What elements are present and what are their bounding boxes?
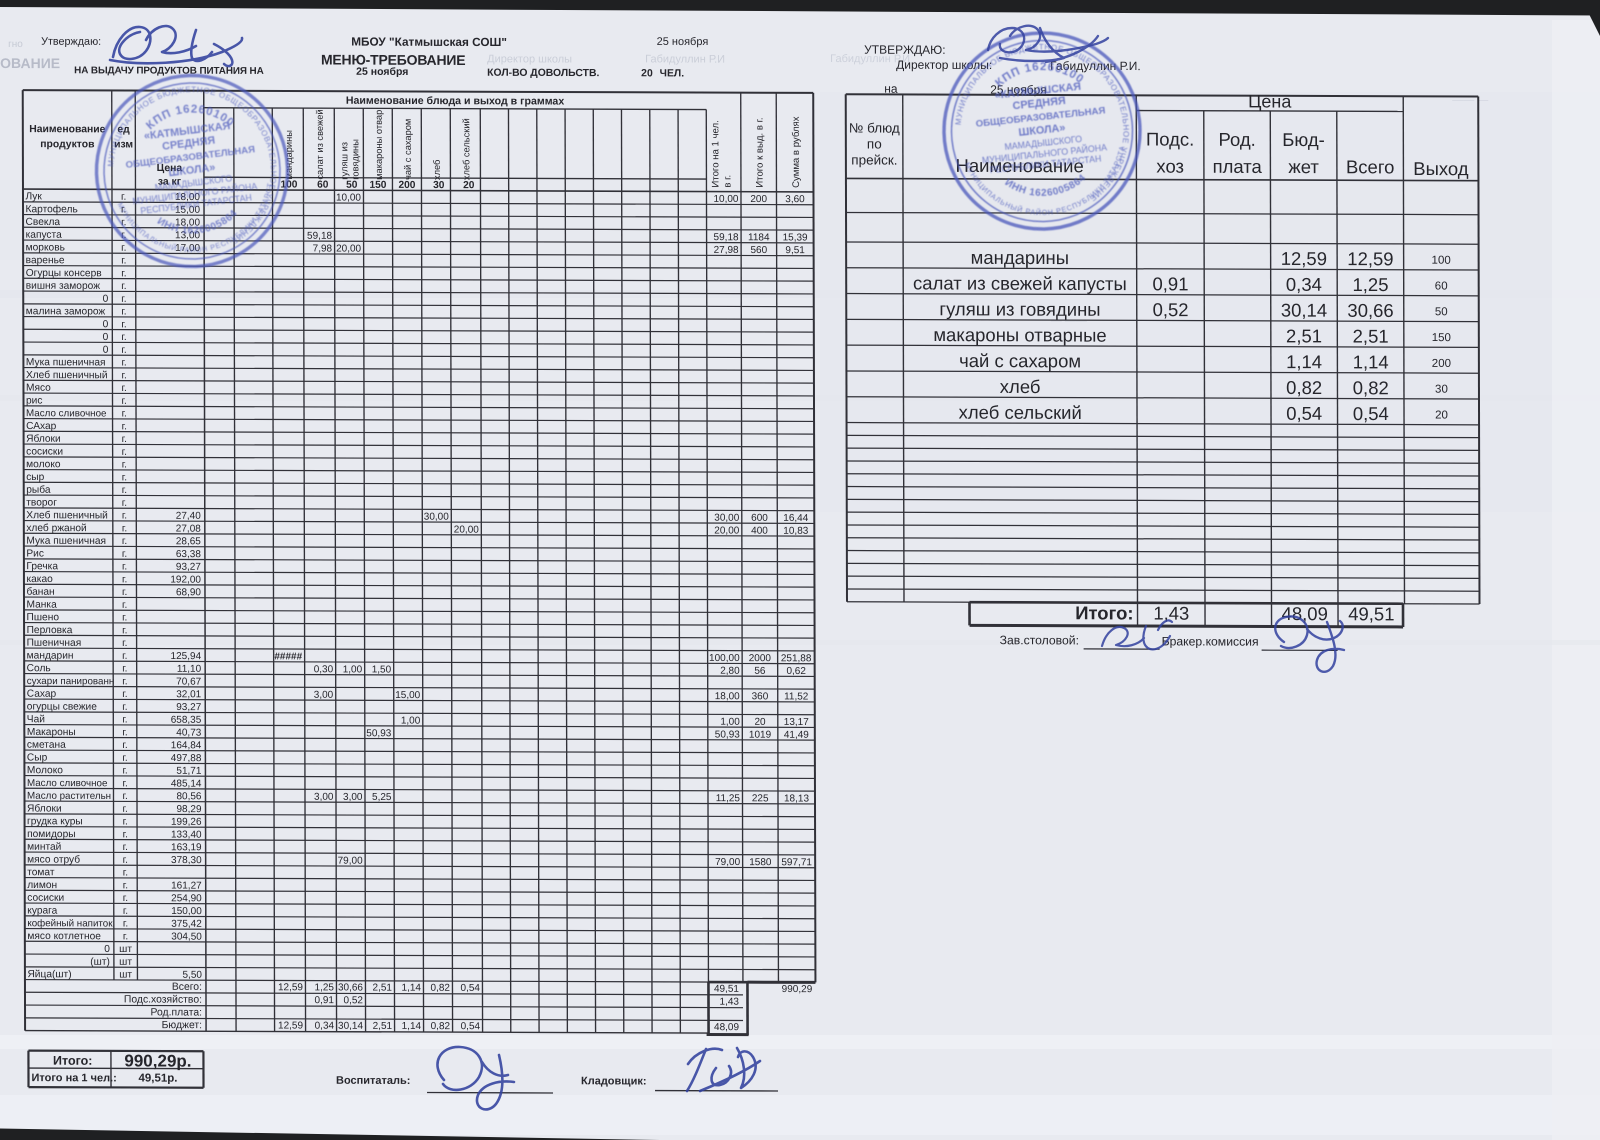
- svg-text:г.: г.: [122, 689, 127, 700]
- svg-text:12,59: 12,59: [278, 1020, 303, 1031]
- svg-text:продуктов: продуктов: [40, 139, 94, 150]
- svg-text:Наименование блюда и выход в г: Наименование блюда и выход в граммах: [346, 95, 564, 108]
- svg-text:Масло растительн: Масло растительн: [27, 791, 111, 802]
- svg-text:г.: г.: [122, 562, 127, 573]
- svg-text:3,00: 3,00: [343, 792, 363, 803]
- svg-text:Итого на 1 чел.:: Итого на 1 чел.:: [31, 1072, 116, 1084]
- svg-text:г.: г.: [122, 409, 127, 420]
- svg-text:0,54: 0,54: [460, 983, 480, 994]
- svg-text:г.: г.: [121, 281, 126, 292]
- svg-text:1184: 1184: [748, 232, 770, 243]
- svg-text:32,01: 32,01: [176, 689, 201, 700]
- svg-text:0,34: 0,34: [1286, 274, 1322, 295]
- svg-text:кофейный напиток: кофейный напиток: [27, 918, 113, 929]
- svg-text:г.: г.: [121, 268, 126, 279]
- svg-text:Итого на 1 чел.: Итого на 1 чел.: [710, 120, 721, 187]
- svg-text:Сыр: Сыр: [27, 752, 48, 763]
- svg-text:1,00: 1,00: [401, 716, 421, 727]
- svg-text:0,54: 0,54: [1353, 403, 1389, 424]
- svg-text:г.: г.: [122, 447, 127, 458]
- svg-text:20: 20: [641, 68, 653, 79]
- svg-text:макароны отварные: макароны отварные: [933, 324, 1106, 346]
- svg-text:чай с сахаром: чай с сахаром: [959, 350, 1081, 371]
- svg-text:18,00: 18,00: [715, 691, 740, 702]
- svg-text:Директор школы:: Директор школы:: [896, 58, 992, 72]
- svg-text:1580: 1580: [749, 857, 772, 868]
- svg-text:2000: 2000: [749, 653, 772, 664]
- svg-text:56: 56: [754, 666, 766, 677]
- svg-text:Перловка: Перловка: [27, 625, 73, 636]
- svg-text:г.: г.: [122, 434, 127, 445]
- svg-text:12,59: 12,59: [278, 982, 303, 993]
- svg-text:мясо отруб: мясо отруб: [27, 853, 80, 865]
- svg-text:12,59: 12,59: [1281, 248, 1327, 269]
- svg-text:г.: г.: [123, 880, 128, 891]
- svg-text:г.: г.: [122, 740, 127, 751]
- svg-text:68,90: 68,90: [176, 587, 201, 598]
- svg-text:30,66: 30,66: [338, 982, 363, 993]
- svg-text:11,25: 11,25: [716, 793, 741, 804]
- svg-text:Яблоки: Яблоки: [27, 802, 62, 814]
- svg-text:18,13: 18,13: [784, 793, 809, 804]
- svg-text:хлеб сельский: хлеб сельский: [461, 118, 471, 180]
- svg-text:1,25: 1,25: [314, 982, 334, 993]
- svg-text:молоко: молоко: [26, 459, 61, 470]
- svg-text:Зав.столовой:: Зав.столовой:: [1000, 633, 1079, 647]
- svg-text:г.: г.: [122, 676, 127, 687]
- svg-text:1,00: 1,00: [720, 717, 740, 728]
- svg-text:№ блюд: № блюд: [849, 120, 900, 135]
- svg-text:225: 225: [752, 793, 769, 804]
- svg-text:Итого к выд. в г.: Итого к выд. в г.: [754, 117, 765, 187]
- svg-text:192,00: 192,00: [170, 575, 201, 586]
- svg-text:100,00: 100,00: [709, 653, 740, 664]
- svg-text:41,49: 41,49: [784, 730, 809, 741]
- svg-text:10,00: 10,00: [336, 193, 361, 204]
- svg-text:САхар: САхар: [26, 421, 57, 432]
- svg-text:16,44: 16,44: [783, 513, 808, 524]
- svg-text:Род.плата:: Род.плата:: [150, 1007, 202, 1018]
- svg-text:49,51: 49,51: [714, 984, 739, 995]
- svg-text:хлеб ржаной: хлеб ржаной: [26, 522, 86, 534]
- svg-text:0,91: 0,91: [315, 995, 335, 1006]
- svg-text:г.: г.: [123, 829, 128, 840]
- svg-text:мандарин: мандарин: [27, 650, 74, 661]
- svg-text:г.: г.: [122, 460, 127, 471]
- svg-text:0,82: 0,82: [1286, 377, 1322, 398]
- svg-text:Наименование: Наименование: [29, 124, 105, 135]
- svg-text:Подс.: Подс.: [1146, 129, 1194, 150]
- svg-text:79,00: 79,00: [338, 856, 363, 867]
- svg-text:378,30: 378,30: [171, 855, 202, 866]
- svg-text:в г.: в г.: [722, 175, 733, 188]
- svg-text:сосиски: сосиски: [27, 893, 64, 904]
- svg-text:Соль: Соль: [27, 663, 51, 674]
- svg-text:27,40: 27,40: [176, 511, 201, 522]
- svg-text:11,52: 11,52: [784, 691, 809, 702]
- svg-text:Итого:: Итого:: [53, 1054, 92, 1068]
- svg-text:0,52: 0,52: [1153, 299, 1189, 320]
- svg-text:400: 400: [751, 526, 768, 537]
- svg-text:Воспитаталь:: Воспитаталь:: [336, 1075, 410, 1087]
- svg-text:прейск.: прейск.: [851, 152, 897, 167]
- svg-text:шт: шт: [119, 944, 132, 955]
- svg-text:г.: г.: [121, 345, 126, 356]
- svg-text:Масло сливочное: Масло сливочное: [26, 408, 107, 419]
- svg-text:г.: г.: [122, 549, 127, 560]
- svg-text:254,90: 254,90: [171, 893, 202, 904]
- svg-text:салат из свежей капусты: салат из свежей капусты: [913, 272, 1127, 294]
- svg-text:малина заморож: малина заморож: [26, 306, 106, 317]
- svg-text:плата: плата: [1213, 156, 1263, 177]
- svg-text:Лук: Лук: [25, 191, 42, 202]
- svg-text:мясо котлетное: мясо котлетное: [27, 931, 101, 942]
- svg-text:г.: г.: [122, 715, 127, 726]
- svg-text:варенье: варенье: [26, 255, 65, 266]
- svg-text:сыр: сыр: [26, 472, 44, 483]
- svg-text:г.: г.: [123, 893, 128, 904]
- svg-text:г.: г.: [122, 727, 127, 738]
- svg-text:50: 50: [1435, 306, 1448, 318]
- svg-text:30,00: 30,00: [714, 513, 739, 524]
- svg-text:УТВЕРЖДАЮ:: УТВЕРЖДАЮ:: [864, 43, 946, 57]
- svg-text:30,66: 30,66: [1347, 300, 1393, 321]
- svg-text:63,38: 63,38: [176, 549, 201, 560]
- svg-text:г.: г.: [121, 358, 126, 369]
- svg-text:150: 150: [1432, 332, 1451, 344]
- svg-text:чай с сахаром: чай с сахаром: [403, 119, 413, 180]
- svg-text:2,51: 2,51: [1353, 326, 1389, 347]
- svg-text:г.: г.: [122, 421, 127, 432]
- svg-text:вишня заморож: вишня заморож: [26, 281, 100, 292]
- svg-text:г.: г.: [123, 906, 128, 917]
- svg-text:251,88: 251,88: [781, 653, 812, 664]
- svg-text:30,14: 30,14: [338, 1021, 363, 1032]
- svg-text:497,88: 497,88: [171, 753, 202, 764]
- svg-text:600: 600: [751, 513, 768, 524]
- svg-text:100: 100: [1432, 255, 1451, 267]
- svg-text:0,54: 0,54: [461, 1021, 481, 1032]
- svg-text:рыба: рыба: [26, 484, 51, 496]
- svg-text:г.: г.: [123, 842, 128, 853]
- svg-text:Род.: Род.: [1218, 129, 1255, 150]
- svg-text:304,50: 304,50: [171, 932, 202, 943]
- svg-text:125,94: 125,94: [171, 651, 202, 662]
- svg-text:сметана: сметана: [27, 740, 66, 751]
- svg-text:0,82: 0,82: [431, 1021, 451, 1032]
- svg-text:30: 30: [433, 180, 445, 191]
- svg-text:1,25: 1,25: [1352, 274, 1388, 295]
- svg-text:Яблоки: Яблоки: [26, 433, 61, 445]
- svg-text:375,42: 375,42: [171, 919, 202, 930]
- svg-text:200: 200: [1432, 358, 1451, 370]
- svg-text:70,67: 70,67: [176, 677, 201, 688]
- svg-text:597,71: 597,71: [781, 857, 812, 868]
- svg-text:говядины: говядины: [350, 139, 360, 180]
- svg-text:0,82: 0,82: [1353, 377, 1389, 398]
- svg-text:2,80: 2,80: [720, 666, 740, 677]
- svg-text:шт: шт: [119, 957, 132, 968]
- svg-text:г.: г.: [123, 817, 128, 828]
- svg-text:3,00: 3,00: [314, 792, 334, 803]
- svg-text:Утверждаю:: Утверждаю:: [41, 36, 101, 48]
- svg-text:50,93: 50,93: [715, 729, 740, 740]
- svg-text:3,00: 3,00: [314, 690, 334, 701]
- svg-text:мандарины: мандарины: [971, 247, 1070, 268]
- svg-text:0,62: 0,62: [786, 666, 806, 677]
- svg-text:г.: г.: [122, 753, 127, 764]
- svg-text:рис: рис: [26, 395, 42, 406]
- svg-text:Мясо: Мясо: [26, 383, 51, 394]
- svg-text:сухари панированн: сухари панированн: [27, 676, 115, 687]
- svg-text:г.: г.: [123, 804, 128, 815]
- svg-text:Бюд-: Бюд-: [1282, 129, 1325, 150]
- svg-text:хлеб: хлеб: [1000, 376, 1041, 397]
- svg-text:20: 20: [463, 180, 475, 191]
- svg-text:Рис: Рис: [26, 548, 44, 559]
- svg-text:г.: г.: [121, 319, 126, 330]
- svg-text:Гречка: Гречка: [26, 561, 58, 572]
- svg-text:г.: г.: [121, 294, 126, 305]
- svg-text:3,60: 3,60: [785, 194, 805, 205]
- svg-text:13,17: 13,17: [784, 717, 809, 728]
- svg-text:(шт): (шт): [90, 957, 110, 968]
- svg-text:творог: творог: [26, 497, 57, 508]
- svg-text:163,19: 163,19: [171, 842, 202, 853]
- svg-text:лимон: лимон: [27, 880, 57, 891]
- svg-text:50: 50: [346, 180, 358, 191]
- svg-text:г.: г.: [122, 523, 127, 534]
- svg-text:г.: г.: [122, 587, 127, 598]
- svg-text:658,35: 658,35: [171, 715, 202, 726]
- svg-text:60: 60: [1435, 280, 1448, 292]
- svg-text:жет: жет: [1288, 156, 1319, 177]
- svg-text:0: 0: [103, 294, 109, 305]
- svg-text:г.: г.: [121, 332, 126, 343]
- svg-text:485,14: 485,14: [171, 779, 202, 790]
- svg-text:30,14: 30,14: [1281, 300, 1327, 321]
- svg-text:98,29: 98,29: [176, 804, 201, 815]
- svg-text:Пшеничная: Пшеничная: [27, 638, 82, 649]
- svg-text:огурцы свежие: огурцы свежие: [27, 701, 97, 712]
- svg-text:Манка: Манка: [26, 599, 57, 610]
- svg-text:0: 0: [104, 944, 110, 955]
- svg-text:20: 20: [754, 717, 766, 728]
- svg-text:10,83: 10,83: [783, 526, 808, 537]
- svg-text:Всего:: Всего:: [172, 982, 202, 993]
- svg-text:г.: г.: [122, 574, 127, 585]
- svg-text:49,51: 49,51: [1348, 603, 1394, 624]
- svg-text:г.: г.: [122, 664, 127, 675]
- svg-text:КОЛ-ВО ДОВОЛЬСТВ.: КОЛ-ВО ДОВОЛЬСТВ.: [487, 68, 599, 79]
- svg-text:Итого:: Итого:: [1075, 602, 1133, 623]
- svg-text:банан: банан: [26, 586, 54, 598]
- svg-text:г.: г.: [122, 498, 127, 509]
- svg-text:60: 60: [317, 180, 329, 191]
- svg-text:360: 360: [752, 691, 769, 702]
- svg-text:100: 100: [280, 180, 297, 191]
- svg-text:560: 560: [750, 245, 767, 256]
- svg-text:г.: г.: [123, 855, 128, 866]
- svg-text:Картофель: Картофель: [26, 203, 78, 215]
- svg-text:минтай: минтай: [27, 842, 61, 853]
- svg-text:хлеб сельский: хлеб сельский: [959, 402, 1082, 423]
- svg-text:гно: гно: [8, 39, 23, 50]
- svg-text:25 ноября: 25 ноября: [356, 66, 408, 78]
- svg-text:20,00: 20,00: [454, 525, 479, 536]
- svg-text:г.: г.: [121, 256, 126, 267]
- svg-text:Яйца(шт): Яйца(шт): [27, 969, 71, 980]
- svg-text:59,18: 59,18: [307, 231, 332, 242]
- svg-text:г.: г.: [122, 472, 127, 483]
- svg-text:грудка куры: грудка куры: [27, 816, 83, 827]
- svg-text:0: 0: [103, 332, 109, 343]
- svg-text:1,14: 1,14: [402, 1021, 422, 1032]
- svg-text:Хлеб пшеничный: Хлеб пшеничный: [26, 509, 108, 521]
- svg-text:133,40: 133,40: [171, 830, 202, 841]
- svg-text:1,00: 1,00: [343, 664, 363, 675]
- svg-text:Макароны: Макароны: [27, 727, 76, 738]
- svg-text:30,00: 30,00: [424, 512, 449, 523]
- svg-text:1019: 1019: [749, 730, 772, 741]
- svg-text:11,10: 11,10: [177, 664, 202, 675]
- svg-text:1,14: 1,14: [1286, 351, 1322, 372]
- svg-text:0,52: 0,52: [344, 995, 364, 1006]
- svg-text:г.: г.: [121, 307, 126, 318]
- svg-text:990,29р.: 990,29р.: [124, 1051, 191, 1070]
- svg-text:шт: шт: [119, 970, 132, 981]
- svg-text:г.: г.: [122, 638, 127, 649]
- svg-text:27,98: 27,98: [714, 245, 739, 256]
- svg-text:200: 200: [750, 194, 767, 205]
- svg-text:НА ВЫДАЧУ ПРОДУКТОВ ПИТАНИЯ НА: НА ВЫДАЧУ ПРОДУКТОВ ПИТАНИЯ НА: [74, 65, 263, 77]
- svg-text:гуляш из говядины: гуляш из говядины: [939, 298, 1100, 320]
- svg-text:г.: г.: [122, 383, 127, 394]
- svg-text:1,43: 1,43: [720, 997, 740, 1008]
- svg-text:9,51: 9,51: [785, 245, 805, 256]
- svg-text:2,51: 2,51: [373, 1021, 393, 1032]
- svg-text:5,25: 5,25: [372, 792, 392, 803]
- svg-text:Мука пшеничная: Мука пшеничная: [26, 357, 106, 368]
- svg-text:МБОУ "Катмышская СОШ": МБОУ "Катмышская СОШ": [351, 35, 507, 50]
- svg-text:2,51: 2,51: [1286, 325, 1322, 346]
- svg-text:макароны отвар: макароны отвар: [374, 110, 384, 180]
- svg-text:томат: томат: [27, 867, 55, 878]
- svg-text:помидоры: помидоры: [27, 829, 76, 840]
- svg-text:Всего: Всего: [1346, 156, 1395, 177]
- svg-text:морковь: морковь: [26, 242, 65, 253]
- svg-text:салат из свежей: салат из свежей: [315, 109, 325, 179]
- svg-text:гуляш из: гуляш из: [339, 142, 349, 180]
- svg-text:Мука пшеничная: Мука пшеничная: [26, 536, 106, 547]
- svg-text:28,65: 28,65: [176, 536, 201, 547]
- svg-text:г.: г.: [121, 243, 126, 254]
- svg-text:199,26: 199,26: [171, 817, 202, 828]
- svg-text:Хлеб пшеничный: Хлеб пшеничный: [26, 369, 108, 381]
- svg-text:г.: г.: [122, 778, 127, 789]
- svg-text:г.: г.: [123, 791, 128, 802]
- svg-text:г.: г.: [122, 613, 127, 624]
- svg-text:г.: г.: [122, 600, 127, 611]
- svg-text:Пшено: Пшено: [27, 612, 60, 623]
- svg-text:200: 200: [398, 180, 415, 191]
- svg-text:Кладовщик:: Кладовщик:: [581, 1075, 647, 1087]
- svg-text:ОВАНИЕ: ОВАНИЕ: [0, 55, 60, 71]
- svg-text:164,84: 164,84: [171, 740, 202, 751]
- svg-text:0,91: 0,91: [1152, 273, 1188, 294]
- svg-text:г.: г.: [122, 536, 127, 547]
- svg-text:Бракер.комиссия: Бракер.комиссия: [1162, 634, 1259, 648]
- svg-text:93,27: 93,27: [176, 702, 201, 713]
- svg-text:20,00: 20,00: [714, 525, 739, 536]
- svg-text:ЧЕЛ.: ЧЕЛ.: [660, 68, 685, 79]
- svg-text:990,29: 990,29: [782, 984, 813, 995]
- svg-text:Сахар: Сахар: [27, 689, 57, 700]
- svg-text:г.: г.: [122, 511, 127, 522]
- svg-text:5,50: 5,50: [182, 970, 202, 981]
- svg-text:г.: г.: [122, 766, 127, 777]
- svg-text:25 ноября: 25 ноября: [657, 36, 709, 48]
- svg-text:Молоко: Молоко: [27, 765, 63, 776]
- svg-text:г.: г.: [122, 396, 127, 407]
- svg-text:79,00: 79,00: [715, 857, 740, 868]
- svg-text:93,27: 93,27: [176, 562, 201, 573]
- svg-text:капуста: капуста: [26, 230, 63, 241]
- svg-text:59,18: 59,18: [714, 232, 739, 243]
- svg-text:хлеб: хлеб: [432, 160, 442, 181]
- svg-text:49,51р.: 49,51р.: [138, 1072, 177, 1084]
- svg-text:Огурцы консерв: Огурцы консерв: [26, 268, 102, 279]
- svg-text:Выход: Выход: [1413, 158, 1469, 179]
- svg-text:1,14: 1,14: [401, 983, 421, 994]
- svg-text:2,51: 2,51: [372, 983, 392, 994]
- svg-text:1,50: 1,50: [372, 664, 392, 675]
- svg-text:1,14: 1,14: [1353, 351, 1389, 372]
- svg-text:80,56: 80,56: [176, 791, 201, 802]
- svg-text:0,34: 0,34: [315, 1021, 335, 1032]
- svg-text:20,00: 20,00: [336, 244, 361, 255]
- svg-text:27,08: 27,08: [176, 524, 201, 535]
- svg-text:20: 20: [1435, 409, 1448, 421]
- svg-text:г.: г.: [123, 868, 128, 879]
- svg-text:г.: г.: [122, 485, 127, 496]
- svg-text:г.: г.: [122, 651, 127, 662]
- svg-text:0,54: 0,54: [1286, 403, 1322, 424]
- svg-text:г.: г.: [122, 702, 127, 713]
- svg-text:0,82: 0,82: [430, 983, 450, 994]
- svg-text:30: 30: [1435, 384, 1448, 396]
- svg-text:по: по: [867, 137, 882, 152]
- svg-text:г.: г.: [123, 931, 128, 942]
- svg-text:Чай: Чай: [27, 714, 45, 725]
- svg-text:Цена: Цена: [1248, 91, 1292, 111]
- svg-text:48,09: 48,09: [714, 1022, 739, 1033]
- svg-text:51,71: 51,71: [176, 766, 201, 777]
- svg-text:Директор школы: Директор школы: [487, 53, 572, 65]
- svg-text:Масло сливочное: Масло сливочное: [27, 778, 108, 789]
- svg-text:какао: какао: [26, 574, 53, 585]
- svg-text:Подс.хозяйство:: Подс.хозяйство:: [124, 994, 202, 1005]
- svg-text:Габидуллин Р.И: Габидуллин Р.И: [645, 53, 725, 65]
- svg-text:0: 0: [103, 319, 109, 330]
- svg-text:0: 0: [103, 345, 109, 356]
- svg-text:10,00: 10,00: [713, 194, 738, 205]
- svg-text:г.: г.: [121, 370, 126, 381]
- svg-text:12,59: 12,59: [1347, 248, 1393, 269]
- svg-text:#####: #####: [274, 651, 302, 662]
- svg-text:7,98: 7,98: [313, 243, 333, 254]
- svg-text:г.: г.: [123, 919, 128, 930]
